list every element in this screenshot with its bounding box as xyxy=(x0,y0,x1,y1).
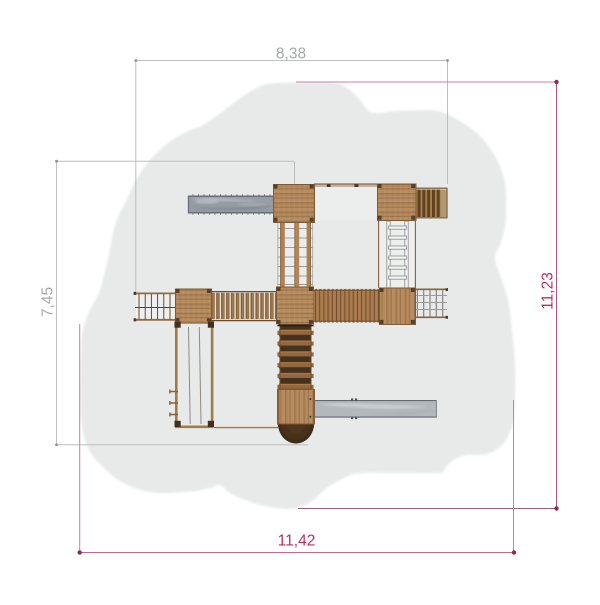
svg-text:8,38: 8,38 xyxy=(276,46,306,63)
svg-text:11,23: 11,23 xyxy=(540,272,557,310)
svg-text:7,45: 7,45 xyxy=(39,287,56,317)
svg-text:11,42: 11,42 xyxy=(278,533,316,550)
